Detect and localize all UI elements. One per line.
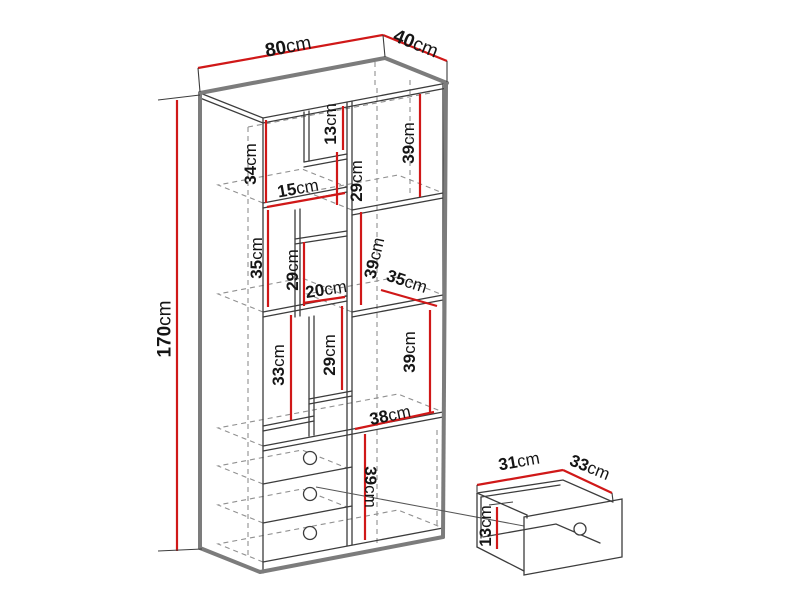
furniture-dimension-diagram: 80cm 40cm 170cm 34cm 13cm 29cm 39cm 15cm… [0,0,800,600]
dim-label-39-top-right: 39cm [399,122,418,164]
shelf-s2 [295,231,347,244]
tick-drawer-13-top [489,502,513,505]
dim-label-34: 34cm [241,143,260,185]
drawer-front-panel [524,499,622,575]
drawer-divider-1 [263,467,352,484]
dim-line-drawer-31 [477,470,563,485]
dim-label-39-drawer-col: 39cm [361,466,380,508]
dim-label-33: 33cm [269,344,288,386]
dim-label-29-lower: 29cm [320,334,339,376]
outline-top-edges [200,58,447,93]
drawer-detail-knob [574,523,586,535]
drawer-knob-1 [304,452,317,465]
dim-label-overall-height: 170cm [155,300,176,357]
dim-label-39-mid-right: 39cm [361,236,389,281]
dim-label-drawer-depth: 33cm [567,451,613,484]
tick-170-bottom [158,549,202,551]
dim-label-overall-width: 80cm [263,33,313,62]
bottom-inner-edge [263,528,443,562]
outline-bottom-edges [200,537,443,572]
dim-label-overall-depth: 40cm [390,26,441,63]
dim-label-drawer-width: 31cm [497,448,541,474]
diagram-canvas: 80cm 40cm 170cm 34cm 13cm 29cm 39cm 15cm… [0,0,800,600]
dim-label-drawer-height: 13cm [476,505,495,547]
tick-drawer-33-right [612,493,613,501]
divider-lower-mid [309,316,314,436]
dim-label-39-lower-right: 39cm [400,331,419,373]
drawer-divider-2 [263,506,352,523]
dimension-lines [177,35,612,551]
dim-label-38: 38cm [368,402,413,429]
drawer-detail [477,480,622,575]
dimension-labels: 80cm 40cm 170cm 34cm 13cm 29cm 39cm 15cm… [155,26,613,547]
dim-label-13: 13cm [321,103,340,145]
dim-label-29-mid: 29cm [283,249,302,291]
dim-label-35-left: 35cm [247,237,266,279]
hidden-drawer-box-2 [218,489,347,523]
cubby-vertical [304,111,309,162]
drawer-knob-2 [304,488,317,501]
shelf-s4b [309,391,352,404]
dim-label-29-top: 29cm [347,160,366,202]
drawer-knob-3 [304,527,317,540]
cubby-shelf [304,154,347,167]
tick-80-left [198,68,200,92]
drawer-bottom-left-edge [477,547,524,571]
tick-80-right [383,35,385,57]
hidden-drawer-box-1 [218,450,347,484]
tick-170-top [158,95,200,100]
dim-label-15: 15cm [276,175,320,201]
hidden-bottom-edge [218,510,443,562]
hidden-shelf-right-1 [307,175,443,210]
